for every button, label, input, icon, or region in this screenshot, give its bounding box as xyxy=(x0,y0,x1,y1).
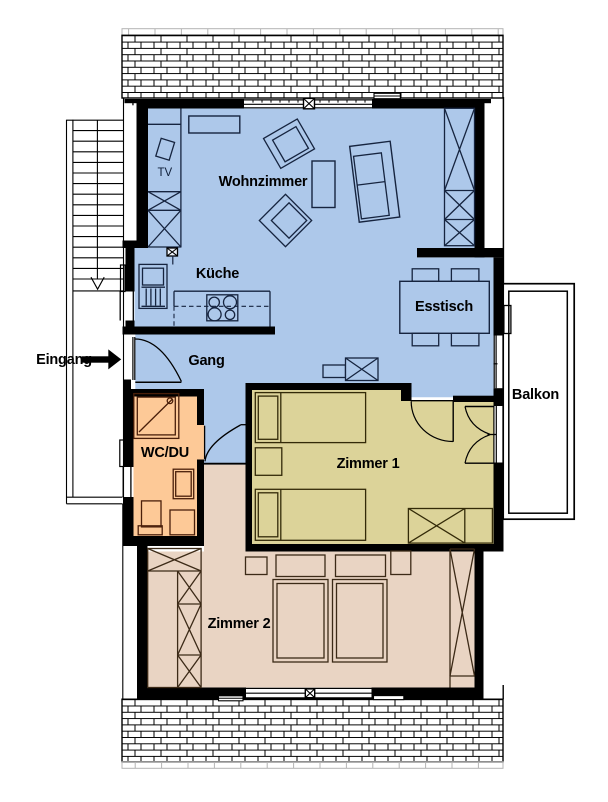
svg-text:TV: TV xyxy=(158,167,173,179)
